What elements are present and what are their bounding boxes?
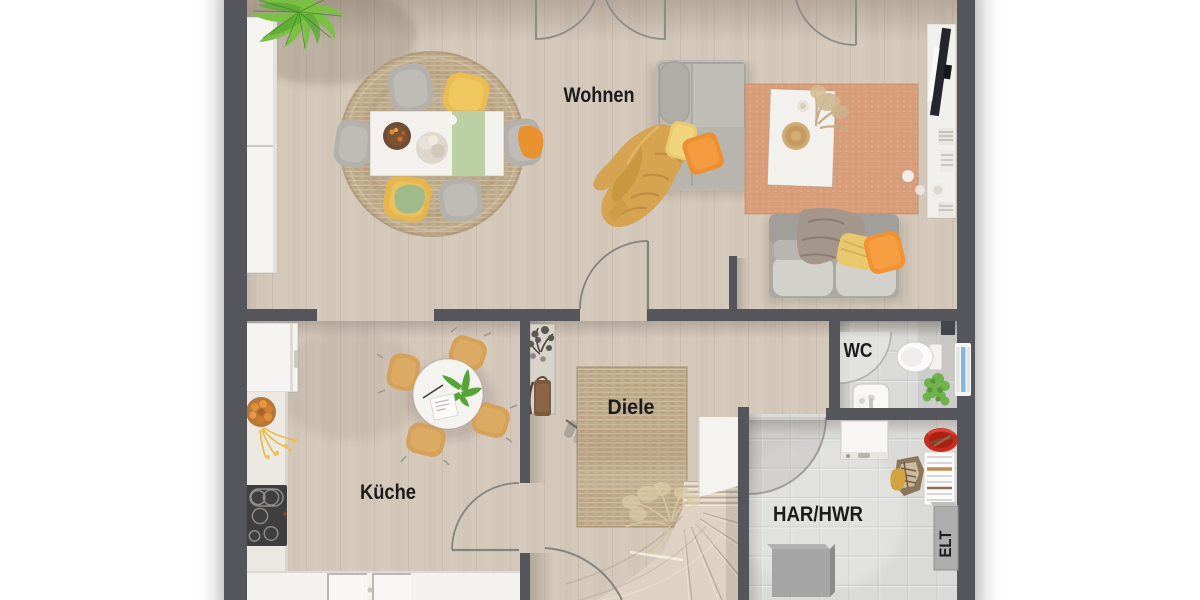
svg-text:Wohnen: Wohnen xyxy=(564,84,635,107)
svg-text:Küche: Küche xyxy=(360,481,416,504)
svg-text:Diele: Diele xyxy=(608,396,655,419)
svg-text:HAR/HWR: HAR/HWR xyxy=(773,503,863,526)
svg-text:WC: WC xyxy=(844,340,873,362)
svg-text:ELT: ELT xyxy=(936,530,955,558)
